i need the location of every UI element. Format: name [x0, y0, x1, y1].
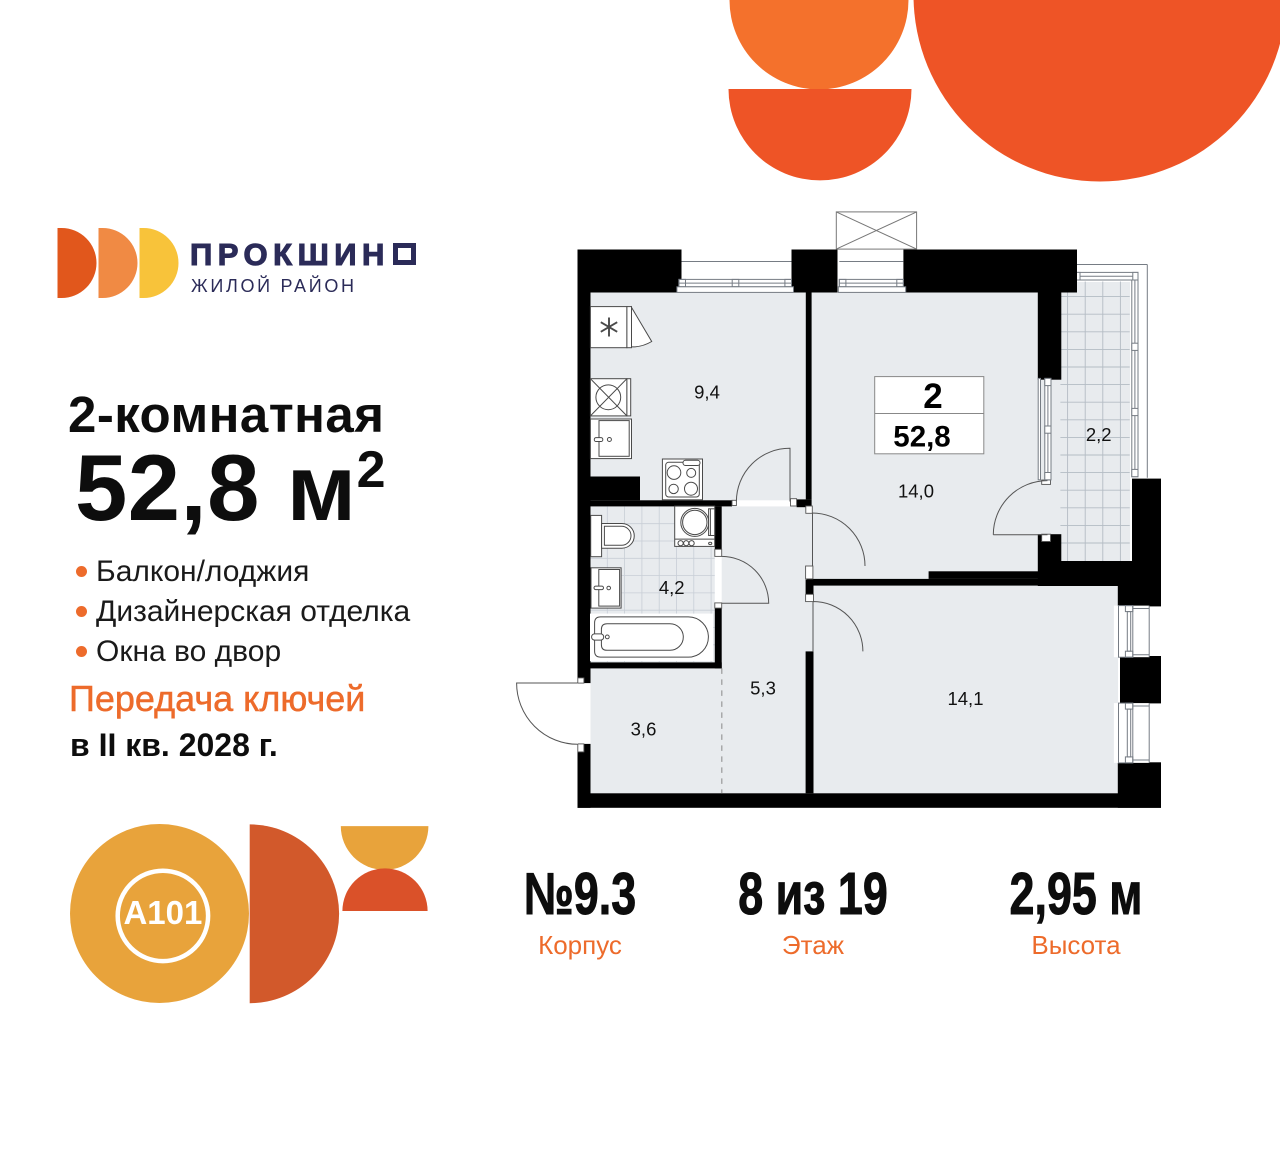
svg-text:14,1: 14,1: [947, 688, 983, 709]
svg-text:9,4: 9,4: [694, 382, 720, 403]
svg-text:4,2: 4,2: [659, 577, 685, 598]
svg-text:52,8: 52,8: [893, 420, 950, 453]
svg-text:2: 2: [923, 377, 942, 416]
svg-text:5,3: 5,3: [750, 678, 776, 699]
svg-text:14,0: 14,0: [898, 481, 934, 502]
svg-text:A101: A101: [123, 894, 202, 931]
svg-text:3,6: 3,6: [631, 719, 657, 740]
svg-text:2,2: 2,2: [1086, 424, 1112, 445]
